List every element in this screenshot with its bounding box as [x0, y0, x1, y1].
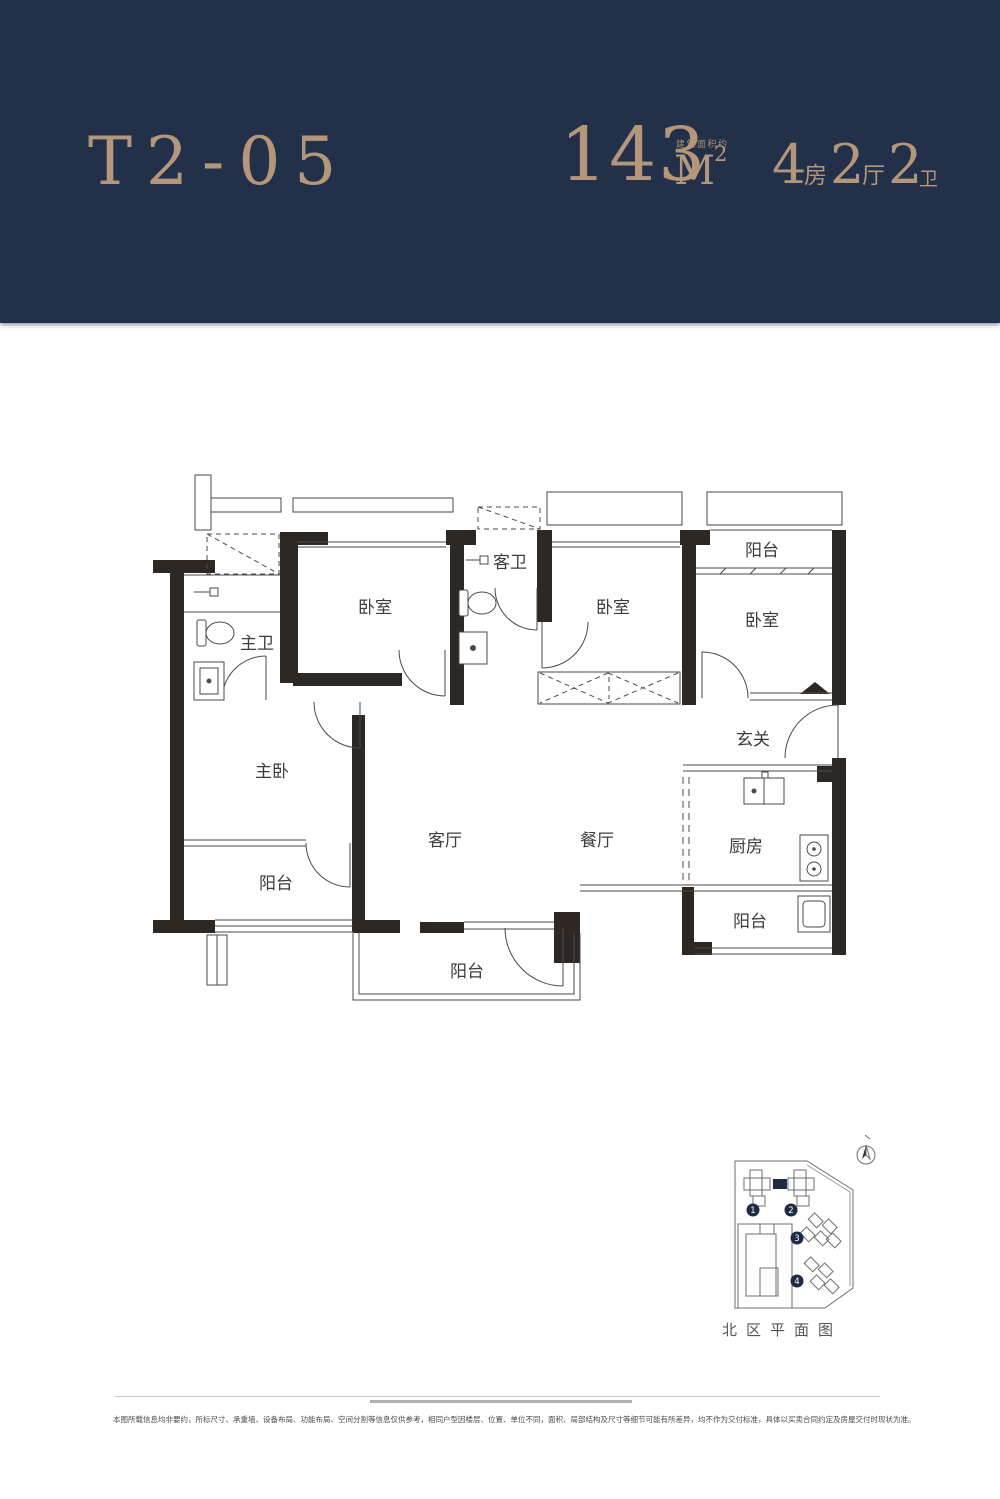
marker-1: 1 [750, 1206, 755, 1216]
toilet-icon [197, 620, 234, 646]
sink-icon [459, 632, 487, 664]
sink-icon [194, 662, 224, 700]
current-unit-highlight [773, 1179, 787, 1189]
room-label-master-bedroom: 主卧 [255, 762, 289, 782]
water-heater-icon [798, 896, 830, 932]
room-label-bedroom-b: 卧室 [596, 598, 630, 618]
faucet-icon [194, 588, 218, 596]
room-label-master-bath: 主卫 [240, 634, 274, 654]
disclaimer-text: 本图所载信息均非要约，所标尺寸、承重墙、设备布局、功能布局、空间分割等信息仅供参… [113, 1414, 903, 1425]
building-large [738, 1224, 792, 1308]
footer-divider-bar [370, 1400, 632, 1403]
site-markers: 1 2 3 4 [747, 1204, 804, 1288]
area-unit: M [674, 153, 715, 189]
kitchen-sink-icon [744, 772, 784, 804]
footer-divider-line [115, 1396, 880, 1397]
marker-3: 3 [794, 1234, 799, 1244]
room-label-guest-bath: 客卫 [493, 553, 527, 573]
wardrobe [538, 672, 680, 704]
building-cluster-4 [804, 1257, 839, 1294]
room-label-bedroom-c: 卧室 [745, 611, 779, 631]
spec-halls-count: 2 [830, 142, 864, 188]
floor-plan: 主卫 卧室 客卫 卧室 阳台 卧室 玄关 主卧 客厅 餐厅 厨房 阳台 阳台 阳… [150, 470, 850, 1030]
room-label-dining: 餐厅 [580, 831, 614, 851]
building-cluster-3 [800, 1213, 841, 1248]
spec-rooms-count: 4 [772, 142, 806, 188]
room-label-bedroom-a: 卧室 [358, 598, 392, 618]
room-label-balcony-kitchen: 阳台 [733, 912, 767, 932]
room-label-living: 客厅 [428, 831, 462, 851]
room-labels: 主卫 卧室 客卫 卧室 阳台 卧室 玄关 主卧 客厅 餐厅 厨房 阳台 阳台 阳… [240, 541, 779, 982]
unit-code: T2-05 [88, 136, 350, 189]
faucet-icon [466, 556, 488, 564]
site-plan: 1 2 3 4 北区平面图 [700, 1128, 920, 1353]
area-superscript: 2 [714, 142, 727, 166]
toilet-icon [459, 590, 496, 616]
room-label-kitchen: 厨房 [729, 837, 763, 857]
building-cluster-2 [788, 1170, 814, 1206]
spec-rooms-label: 房 [804, 165, 827, 188]
room-label-balcony-top: 阳台 [745, 541, 779, 561]
room-label-foyer: 玄关 [736, 730, 770, 750]
room-label-balcony-left: 阳台 [259, 874, 293, 894]
entry-arrow-icon [800, 682, 830, 694]
header-banner: T2-05 143 建筑面积约 M 2 4 房 2 厅 2 卫 [0, 0, 1000, 323]
room-label-balcony-bottom: 阳台 [450, 962, 484, 982]
site-plan-caption: 北区平面图 [722, 1321, 842, 1339]
marker-2: 2 [788, 1206, 793, 1216]
compass-icon [857, 1135, 875, 1164]
spec-baths-count: 2 [888, 142, 922, 188]
stove-icon [800, 835, 828, 881]
spec-baths-label: 卫 [919, 170, 938, 189]
marker-4: 4 [794, 1277, 799, 1287]
spec-halls-label: 厅 [862, 165, 885, 188]
building-cluster-1 [744, 1170, 770, 1206]
